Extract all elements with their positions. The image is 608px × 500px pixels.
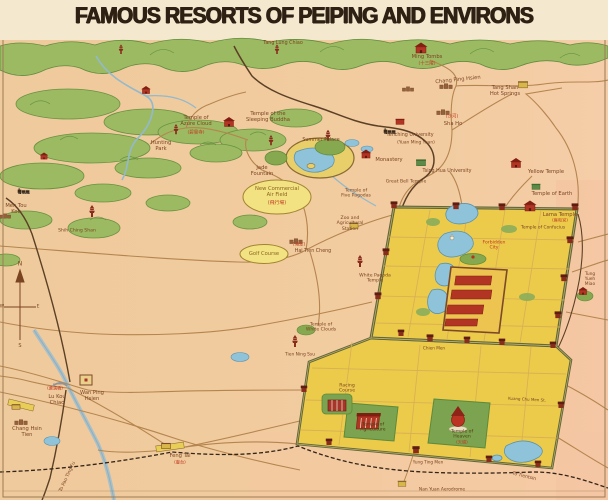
racing-course (322, 394, 352, 414)
station-icon (12, 405, 20, 410)
bldg-yellow-icon (350, 223, 359, 229)
gate-icon (555, 311, 562, 318)
gate-icon (561, 274, 568, 281)
peiping-resorts-map: FAMOUS RESORTS OF PEIPING AND ENVIRONS T… (0, 0, 608, 500)
gate-icon (464, 337, 470, 343)
gate-icon (558, 402, 564, 408)
map-title: FAMOUS RESORTS OF PEIPING AND ENVIRONS (24, 2, 583, 29)
station-icon (162, 444, 171, 449)
gate-icon (572, 203, 579, 210)
air-field-oval (243, 180, 311, 214)
walled-icon (80, 375, 92, 385)
gate-icon (453, 202, 460, 209)
bldg-green-icon (532, 184, 541, 190)
gate-icon (535, 461, 541, 467)
gate-icon (412, 446, 419, 453)
bldg-yellow-icon (398, 481, 407, 487)
gate-icon (427, 334, 434, 341)
gate-icon (383, 248, 390, 255)
bldg-green-icon (416, 159, 426, 165)
map-artwork (0, 0, 608, 500)
gate-icon (398, 330, 404, 336)
gate-icon (486, 456, 492, 462)
gate-icon (499, 203, 506, 210)
bldg-red-icon (396, 119, 405, 125)
gate-icon (550, 342, 556, 348)
gate-icon (301, 386, 307, 392)
temple-of-heaven (428, 399, 490, 448)
gate-icon (567, 236, 574, 243)
golf-course-oval (240, 245, 288, 264)
gate-icon (499, 339, 505, 345)
gate-icon (375, 292, 382, 299)
bldg-yellow-icon (518, 81, 528, 88)
gate-icon (326, 439, 332, 445)
gate-icon (391, 201, 398, 208)
